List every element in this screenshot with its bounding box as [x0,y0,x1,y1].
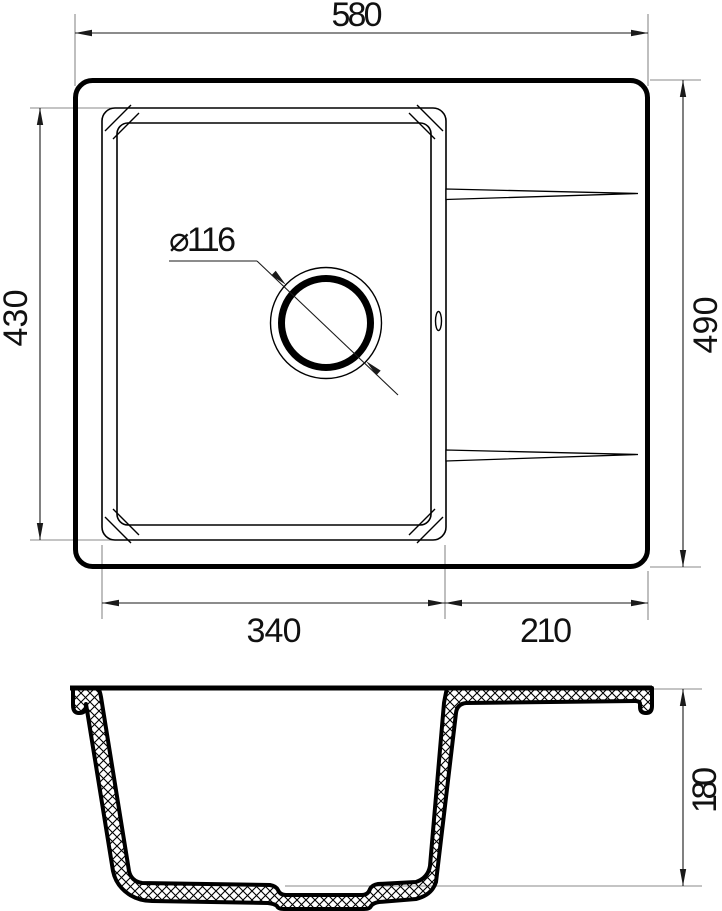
sink-outer-body [76,81,648,567]
drain-hole [271,268,382,379]
drainboard-grooves [446,189,638,461]
bowl-outer-rim [102,108,446,540]
dim-label-580: 580 [332,0,383,34]
dim-label-210: 210 [520,612,572,650]
bowl-corner-chamfers [105,105,443,543]
dim-label-340: 340 [247,612,302,650]
bowl-inner-rim [117,123,431,525]
section-view: 180 [70,688,722,909]
extension-lines-section [285,689,702,886]
dim-label-diameter-116: ⌀116 [169,221,236,259]
dim-bowl-depth: 430 [0,108,43,540]
section-profile [73,688,652,909]
technical-drawing-sheet: 580 430 490 340 210 [0,0,722,911]
overflow-slot [436,312,442,331]
top-view: 580 430 490 340 210 [0,0,722,650]
dim-label-180: 180 [686,767,722,813]
dim-label-430: 430 [0,290,35,347]
dim-label-490: 490 [687,297,722,354]
dim-section-height: 180 [680,689,722,886]
dim-overall-width: 580 [75,0,648,36]
sink-dimension-drawing: 580 430 490 340 210 [0,0,722,911]
dim-bowl-and-drainboard-width: 340 210 [102,600,648,650]
dim-overall-depth: 490 [680,80,722,567]
